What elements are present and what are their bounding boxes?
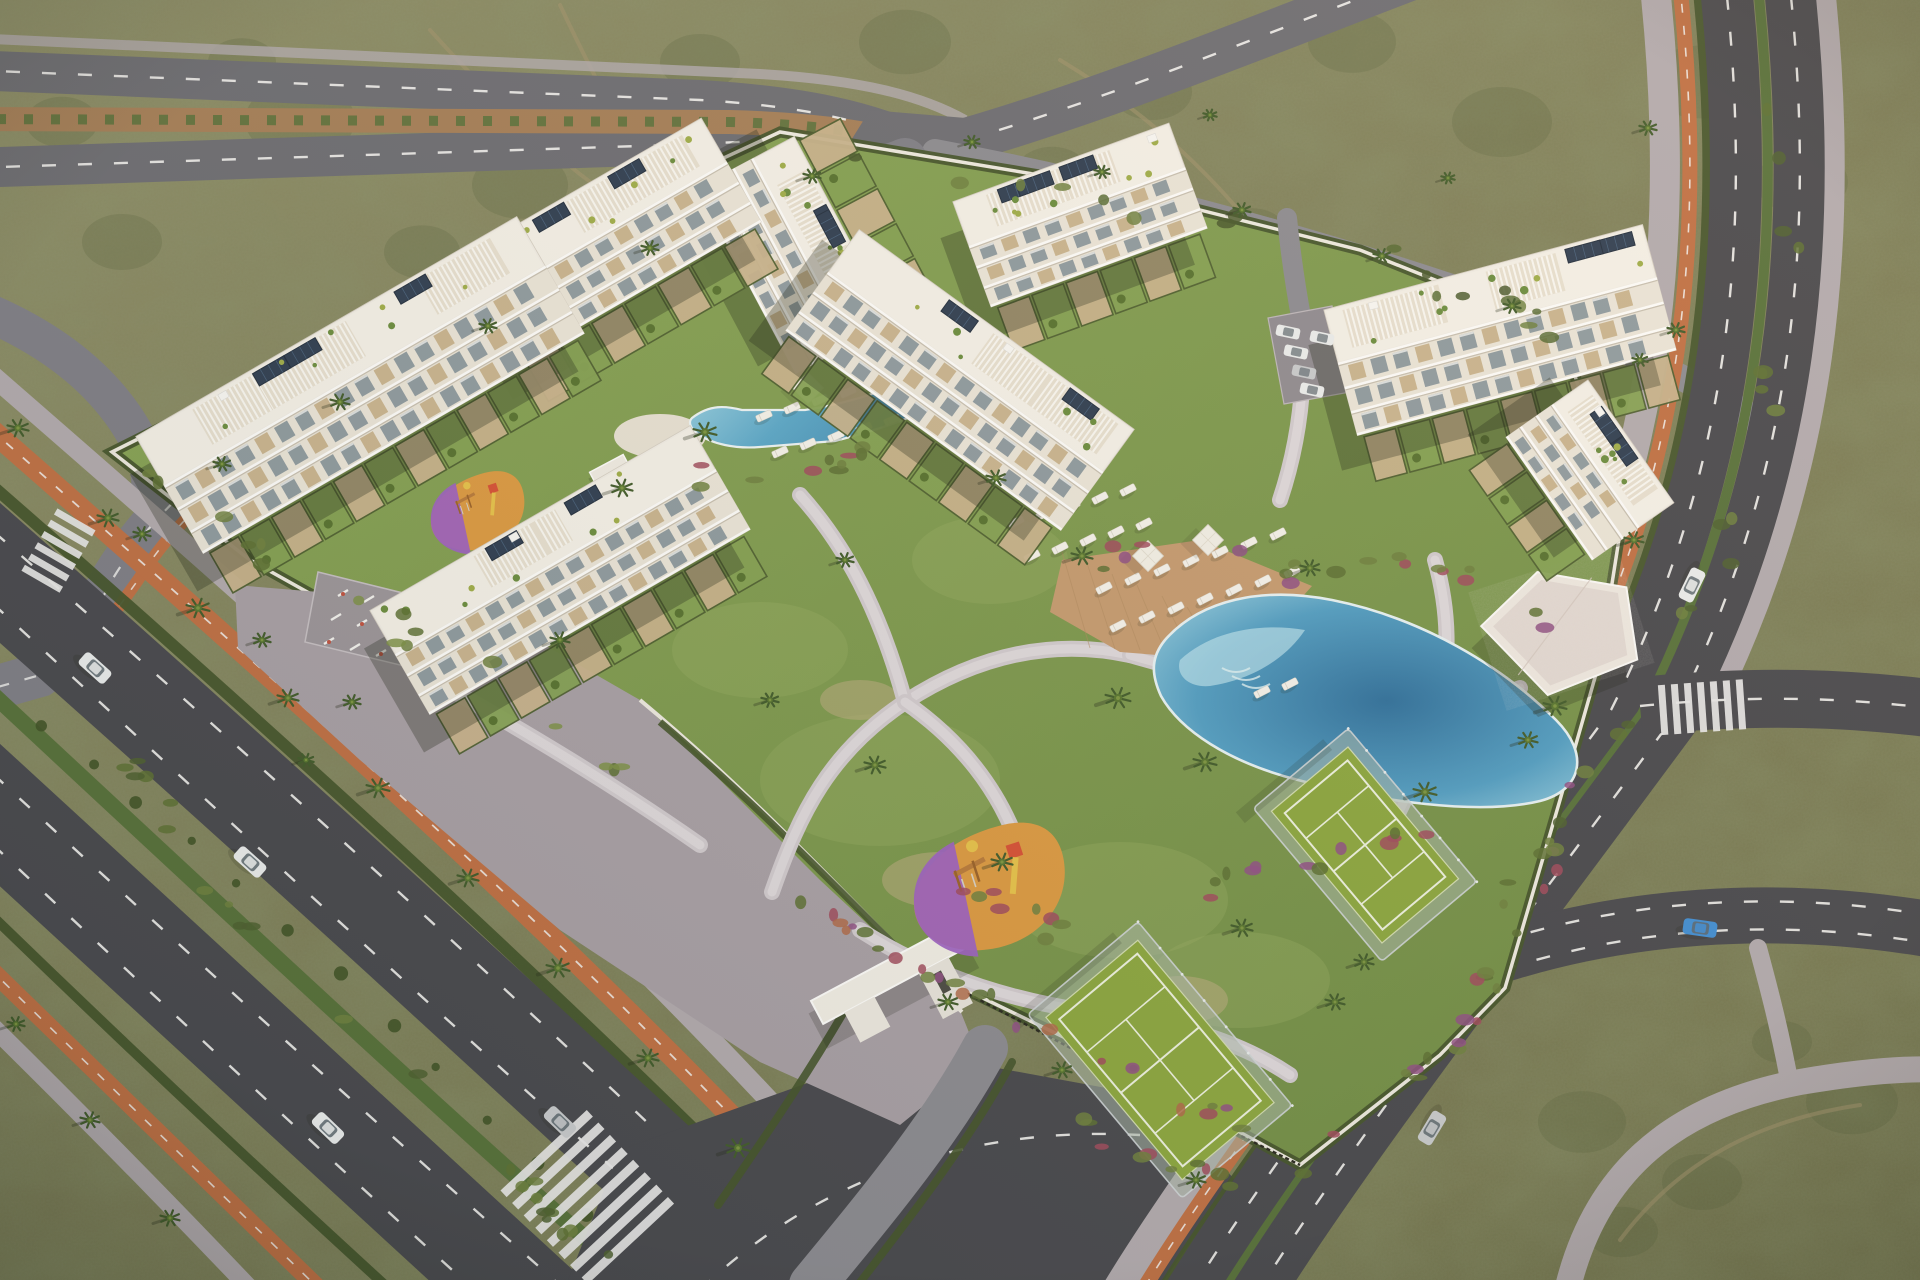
render-stage — [0, 0, 1920, 1280]
aerial-site-render — [0, 0, 1920, 1280]
light-effects-layer — [0, 0, 1920, 1280]
warm-light-overlay — [0, 0, 1920, 1280]
